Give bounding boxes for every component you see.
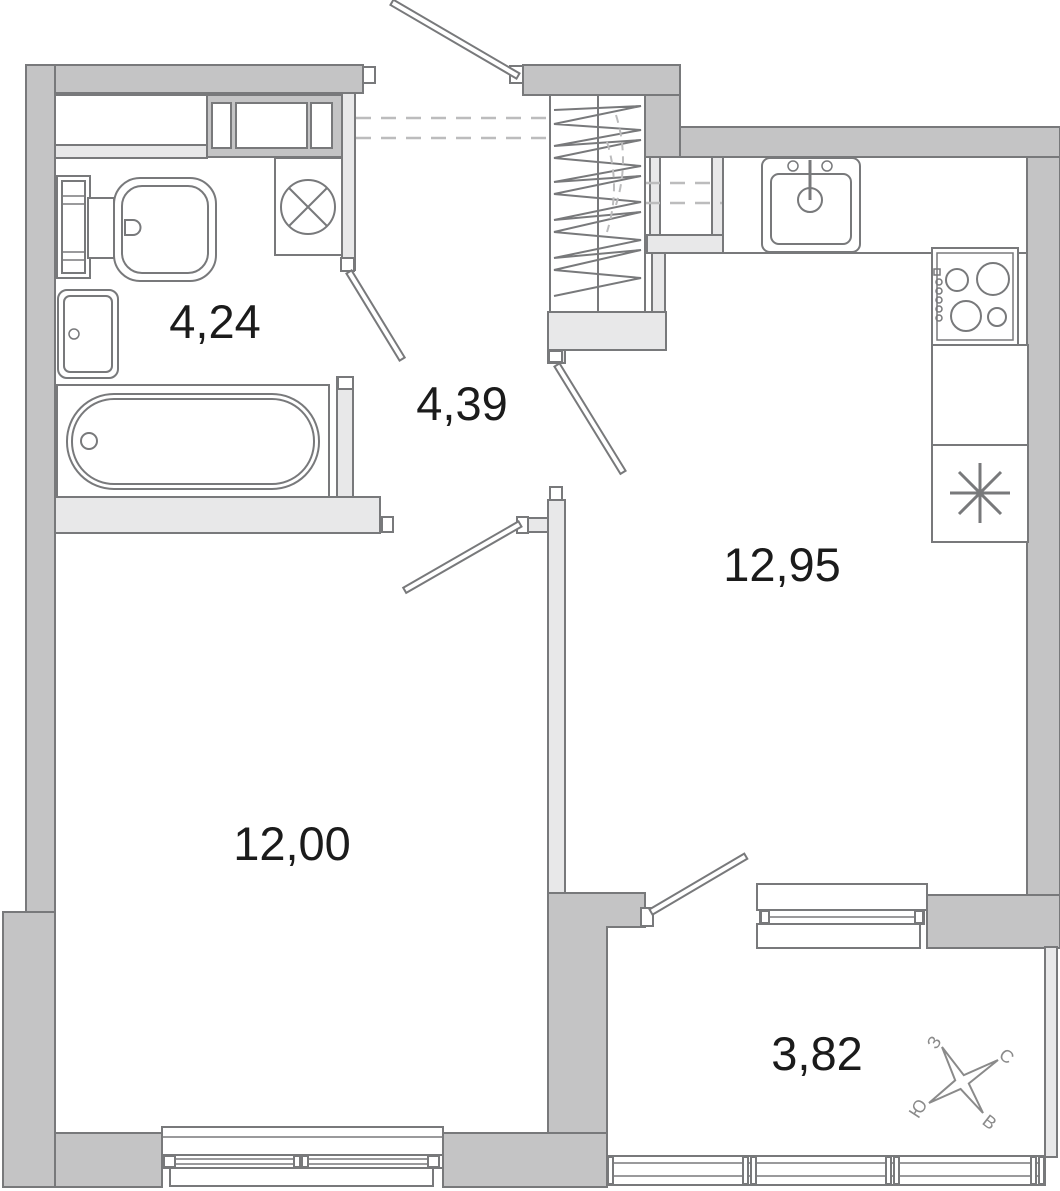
toilet: [88, 178, 216, 281]
compass-rose: С З Ю В: [905, 1032, 1018, 1133]
window-end-cap: [761, 911, 769, 923]
bathroom-door-leaf: [346, 270, 404, 360]
area-label-balcony: 3,82: [771, 1027, 862, 1080]
glazing-mullion: [886, 1157, 891, 1184]
door-stub-wall: [528, 518, 548, 532]
toilet-tank: [88, 198, 114, 258]
door-jamb: [382, 517, 393, 532]
wall-segment: [523, 65, 680, 95]
window-end-cap: [164, 1156, 175, 1167]
fridge-symbol: [950, 463, 1010, 523]
window-sill-inner: [162, 1127, 443, 1155]
window-sill-inner: [757, 884, 927, 910]
wall-segment: [1027, 157, 1060, 948]
glazing-mullion: [1031, 1157, 1036, 1184]
glazing-band: [607, 1156, 1045, 1185]
towel-radiator: [57, 176, 90, 278]
living-kitchen-wall: [548, 500, 565, 893]
balcony-glazing: [607, 1156, 1045, 1185]
bathroom-sink: [58, 290, 118, 378]
window-sill-outer: [170, 1168, 433, 1186]
bathroom-counter: [55, 95, 207, 145]
window-end-cap: [915, 911, 923, 923]
bathroom-top-cabinet: [207, 95, 342, 157]
cabinet-door: [311, 103, 332, 148]
door-jamb: [549, 351, 562, 362]
glazing-mullion: [751, 1157, 756, 1184]
bathroom-shelf-strip: [55, 145, 207, 158]
apartment-floorplan: 4,24 4,39 12,95 12,00 3,82 С З Ю В: [0, 0, 1060, 1191]
wall-segment: [443, 1133, 607, 1187]
compass-star-icon: [929, 1047, 998, 1113]
wall-below-wardrobe: [548, 312, 666, 350]
compass-south-label: Ю: [905, 1095, 932, 1121]
bathroom-bottom-wall: [55, 497, 380, 533]
area-label-bathroom: 4,24: [169, 295, 260, 348]
bathroom-wall-lower: [337, 377, 353, 497]
kitchen-door-leaf: [554, 363, 625, 473]
wall-segment: [55, 1133, 162, 1187]
stove: [932, 248, 1018, 345]
window-mullion: [294, 1156, 300, 1167]
door-jamb: [363, 67, 375, 83]
wall-segment: [26, 65, 55, 912]
wall-segment: [680, 127, 1060, 157]
toilet-bowl: [114, 178, 216, 281]
door-jamb: [341, 258, 354, 271]
glazing-mullion: [1039, 1157, 1044, 1184]
floorplan-canvas: 4,24 4,39 12,95 12,00 3,82 С З Ю В: [0, 0, 1060, 1191]
wall-segment: [642, 95, 680, 157]
wall-segment: [26, 65, 363, 93]
window-mullion: [302, 1156, 308, 1167]
door-jamb: [338, 377, 353, 389]
window-end-cap: [428, 1156, 439, 1167]
wall-segment: [3, 912, 55, 1187]
sink-basin: [58, 290, 118, 378]
kitchen-counter-side: [932, 345, 1028, 445]
kitchen: [723, 157, 1028, 542]
balcony-door-leaf: [649, 854, 747, 915]
wall-segment: [927, 895, 1060, 948]
glazing-mullion: [894, 1157, 899, 1184]
duct-niche-bottom-wall: [647, 235, 723, 253]
area-label-kitchen: 12,95: [723, 538, 841, 591]
bathtub: [57, 385, 329, 497]
area-label-hallway: 4,39: [416, 377, 507, 430]
glazing-mullion: [743, 1157, 748, 1184]
kitchen-sink: [762, 158, 860, 252]
compass-north-label: С: [995, 1044, 1018, 1068]
compass-east-label: В: [979, 1111, 1001, 1134]
kitchen-balcony-window: [757, 884, 927, 948]
wall-segment: [652, 253, 665, 312]
washing-machine: [275, 158, 342, 255]
entrance-door-leaf: [390, 0, 519, 79]
window-sill-outer: [757, 924, 920, 948]
stove-body: [932, 248, 1018, 345]
door-jamb: [550, 487, 562, 500]
glazing-mullion: [608, 1157, 613, 1184]
area-label-living-room: 12,00: [233, 817, 351, 870]
bathroom-wall-upper: [342, 93, 355, 270]
balcony-right-wall: [1045, 947, 1057, 1157]
cabinet-door: [212, 103, 231, 148]
living-room-door-leaf: [403, 521, 521, 593]
cabinet-door: [236, 103, 307, 148]
wardrobe: [550, 95, 645, 312]
living-room-window: [162, 1127, 443, 1186]
